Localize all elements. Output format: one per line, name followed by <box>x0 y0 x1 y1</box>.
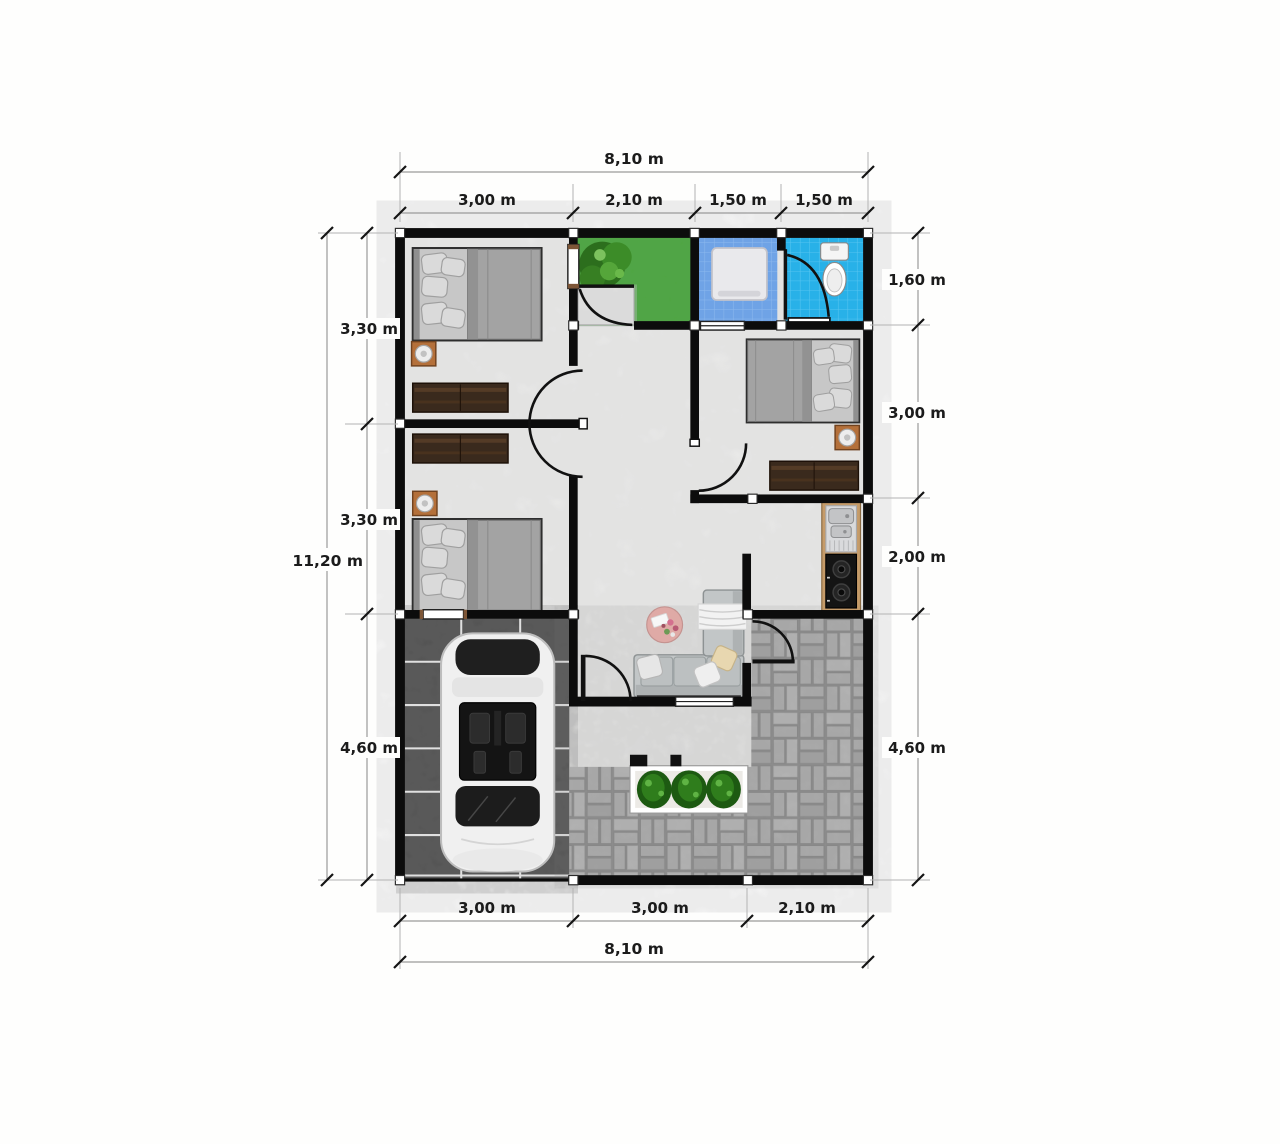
dim-left-seg-1: 3,30 m <box>340 320 398 338</box>
blanket-icon <box>698 604 747 629</box>
planter-shrubs-icon <box>637 770 741 808</box>
dim-left-seg-2: 3,30 m <box>340 511 398 529</box>
dim-left-seg-3: 4,60 m <box>340 739 398 757</box>
nightstand-icon <box>413 491 437 515</box>
floor-plan-page: 8,10 m 3,00 m 2,10 m 1,50 m 1,50 m 3,00 … <box>0 0 1280 1144</box>
dim-bottom-seg-1: 3,00 m <box>458 899 516 917</box>
bathroom-window <box>700 321 744 330</box>
dim-left-overall: 11,20 m <box>292 552 363 570</box>
kitchen-sink-icon <box>826 506 857 552</box>
dim-right-seg-2: 3,00 m <box>888 404 946 422</box>
dim-top-seg-4: 1,50 m <box>795 191 853 209</box>
courtyard-window <box>568 245 579 289</box>
living-room-window <box>676 697 734 706</box>
dim-bottom-overall: 8,10 m <box>604 940 664 958</box>
floor-plan <box>395 228 873 885</box>
dim-bottom-seg-3: 2,10 m <box>778 899 836 917</box>
bedroom2-window <box>420 610 467 619</box>
car-icon <box>441 633 554 871</box>
wardrobe-icon <box>770 461 859 490</box>
floor-plan-canvas: 8,10 m 3,00 m 2,10 m 1,50 m 1,50 m 3,00 … <box>0 0 1280 1144</box>
nightstand-icon <box>412 342 436 366</box>
bathroom-wc <box>784 238 864 326</box>
stove-icon <box>826 554 857 608</box>
dim-top-overall: 8,10 m <box>604 150 664 168</box>
bed-icon <box>413 248 542 340</box>
wardrobe-icon <box>413 434 508 463</box>
bed-icon <box>413 519 542 611</box>
coffee-table-icon <box>647 607 683 643</box>
bathroom-shower <box>699 238 778 322</box>
wardrobe-icon <box>413 383 508 412</box>
bed-icon <box>747 339 860 422</box>
courtyard-door <box>578 284 634 324</box>
toilet-icon <box>821 243 849 296</box>
dim-bottom-seg-2: 3,00 m <box>631 899 689 917</box>
dim-top-seg-2: 2,10 m <box>605 191 663 209</box>
dim-top-seg-1: 3,00 m <box>458 191 516 209</box>
kitchen <box>822 502 861 611</box>
dim-right-seg-3: 2,00 m <box>888 548 946 566</box>
nightstand-icon <box>835 425 859 449</box>
shower-tray-icon <box>712 248 767 300</box>
courtyard-garden <box>577 238 690 325</box>
dim-right-seg-4: 4,60 m <box>888 739 946 757</box>
dim-right-seg-1: 1,60 m <box>888 271 946 289</box>
carport <box>405 618 570 880</box>
dim-top-seg-3: 1,50 m <box>709 191 767 209</box>
